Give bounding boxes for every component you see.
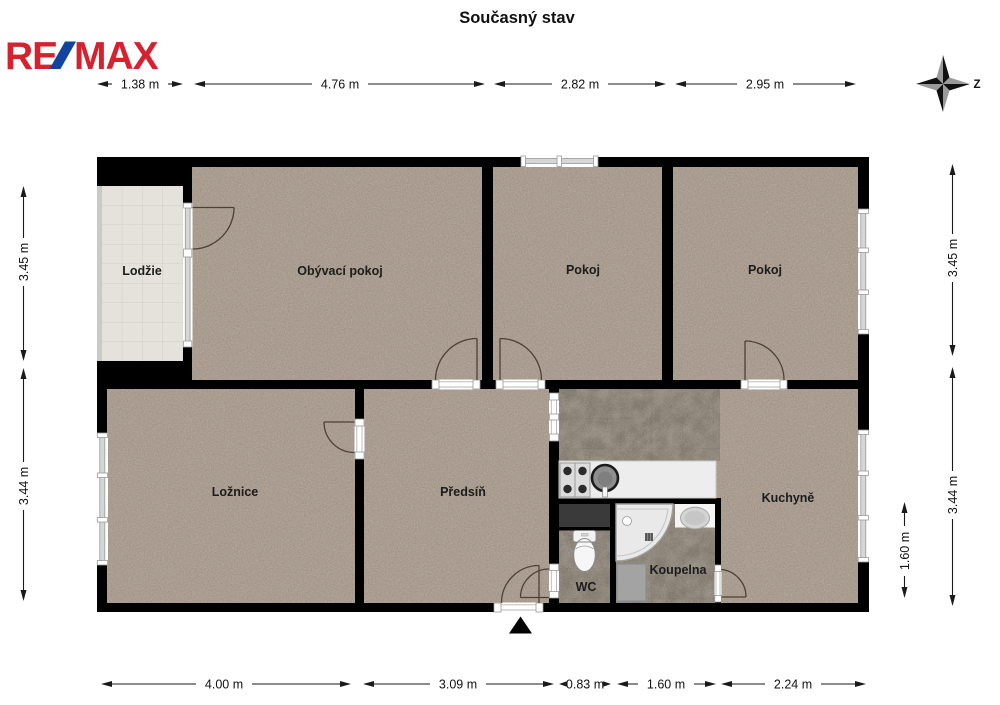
svg-text:Koupelna: Koupelna	[650, 563, 708, 577]
svg-text:0.83 m: 0.83 m	[566, 678, 604, 692]
svg-text:2.24 m: 2.24 m	[774, 678, 812, 692]
svg-text:4.00 m: 4.00 m	[205, 678, 243, 692]
svg-text:Lodžie: Lodžie	[122, 264, 162, 278]
svg-text:2.82 m: 2.82 m	[561, 78, 599, 92]
svg-text:1.60 m: 1.60 m	[898, 532, 912, 570]
svg-text:Pokoj: Pokoj	[566, 263, 600, 277]
svg-text:WC: WC	[576, 580, 597, 594]
svg-text:3.45 m: 3.45 m	[17, 243, 31, 281]
svg-text:3.44 m: 3.44 m	[17, 467, 31, 505]
svg-text:3.45 m: 3.45 m	[946, 239, 960, 277]
svg-text:Z: Z	[973, 79, 980, 91]
svg-text:Ložnice: Ložnice	[212, 485, 259, 499]
svg-text:3.09 m: 3.09 m	[439, 678, 477, 692]
svg-text:1.60 m: 1.60 m	[647, 678, 685, 692]
svg-text:Pokoj: Pokoj	[748, 263, 782, 277]
svg-text:Předsíň: Předsíň	[440, 485, 486, 499]
svg-text:Kuchyně: Kuchyně	[762, 491, 815, 505]
svg-text:3.44 m: 3.44 m	[946, 476, 960, 514]
svg-text:2.95 m: 2.95 m	[746, 78, 784, 92]
svg-text:4.76 m: 4.76 m	[321, 78, 359, 92]
svg-text:Obývací pokoj: Obývací pokoj	[297, 264, 382, 278]
svg-text:MAX: MAX	[74, 35, 159, 78]
svg-text:Současný stav: Současný stav	[459, 9, 575, 27]
svg-text:RE: RE	[5, 35, 57, 78]
svg-text:1.38 m: 1.38 m	[121, 78, 159, 92]
